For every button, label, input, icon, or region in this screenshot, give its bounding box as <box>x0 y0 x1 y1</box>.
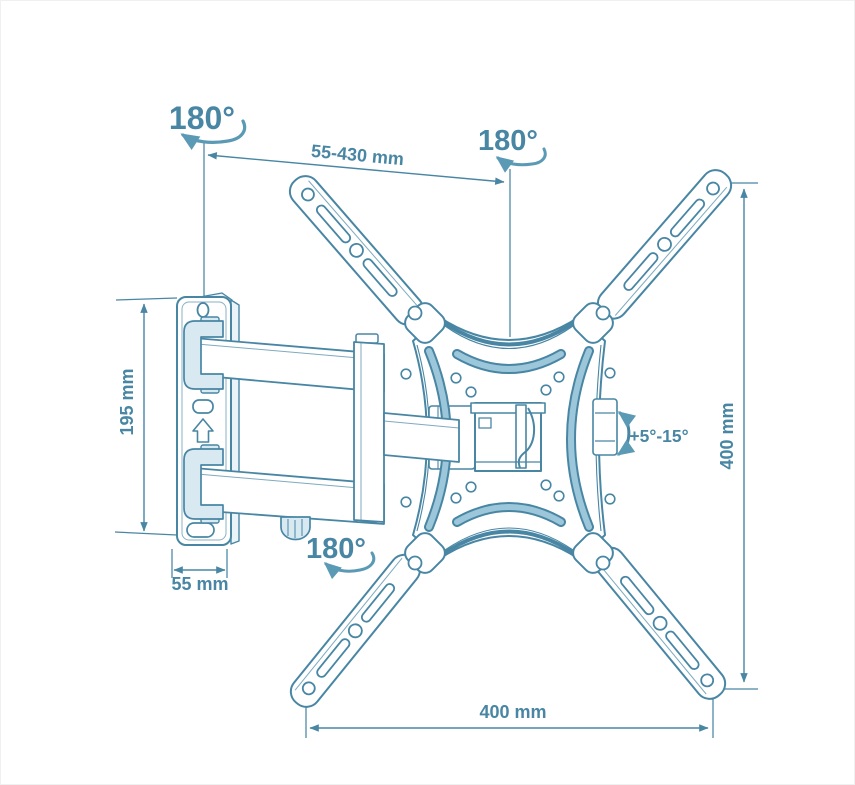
plate-top-hole <box>198 303 209 317</box>
arm-bottom-left <box>285 549 425 712</box>
label-bracket-width: 400 mm <box>479 702 546 722</box>
arm-top-right <box>592 164 737 324</box>
label-swivel-bottom: 180° <box>306 533 366 565</box>
label-bracket-height: 400 mm <box>717 402 737 469</box>
arm-bottom-right <box>589 542 730 705</box>
central-latch-window <box>471 403 545 471</box>
plate-mid-slot <box>193 400 213 413</box>
connector-bar <box>384 413 459 462</box>
diagram-canvas: 180° 180° 180° 55-430 mm 195 mm 55 mm +5… <box>0 0 855 785</box>
plate-bottom-slot <box>187 523 214 537</box>
elbow-joint <box>354 334 384 522</box>
label-swivel-top-center: 180° <box>478 125 538 157</box>
arm-top-left <box>284 170 429 330</box>
label-wall-plate-width: 55 mm <box>171 574 228 594</box>
label-tilt-range: +5°-15° <box>629 426 688 446</box>
wall-mount-diagram: 180° 180° 180° 55-430 mm 195 mm 55 mm +5… <box>1 1 855 785</box>
tilt-arc-icon <box>619 413 629 454</box>
label-swivel-top-left: 180° <box>169 100 235 136</box>
label-wall-plate-height: 195 mm <box>117 368 137 435</box>
